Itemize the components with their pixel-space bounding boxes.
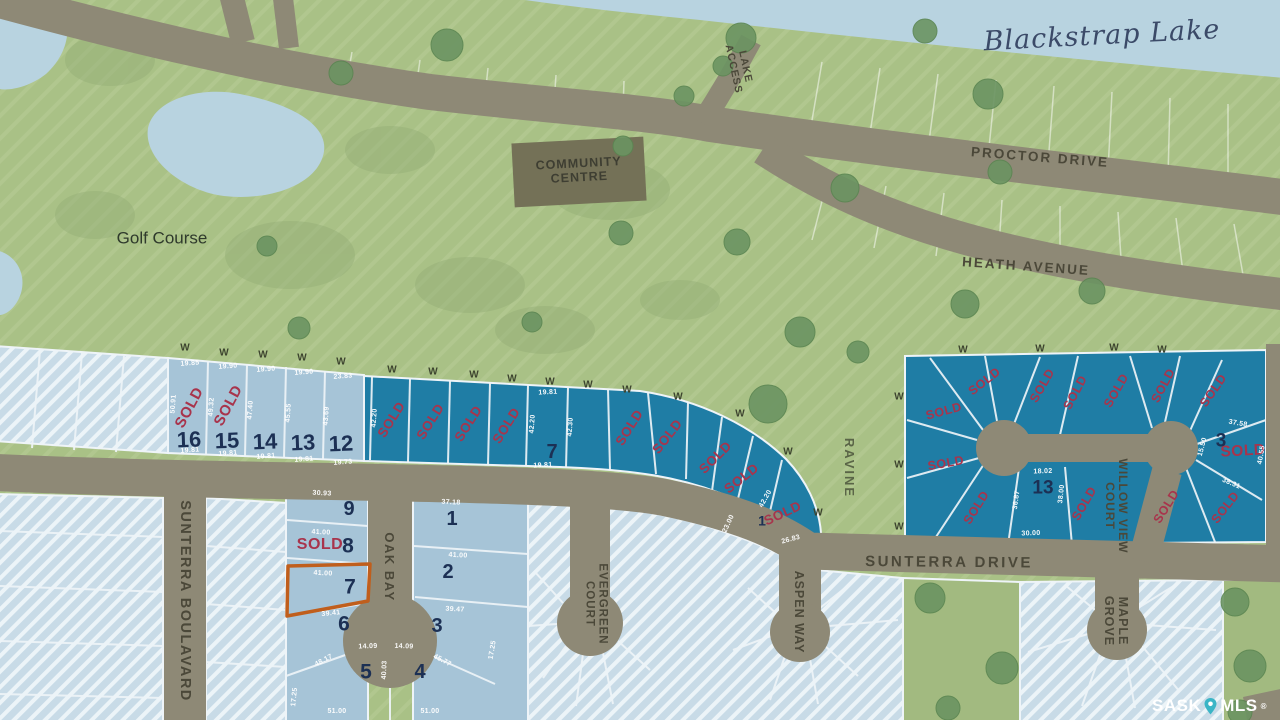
lot-number: 2 — [442, 561, 453, 583]
well-marker: W — [894, 392, 903, 403]
well-marker: W — [507, 374, 516, 385]
lot-dimension: 17.25 — [488, 640, 499, 660]
lot-dimension: 30.00 — [1021, 530, 1040, 538]
well-marker: W — [673, 392, 682, 403]
golf-course-label: Golf Course — [117, 230, 208, 249]
sold-label: SOLD — [375, 399, 409, 440]
lot-dimension: 43.69 — [323, 406, 332, 426]
lot-dimension: 30.93 — [312, 490, 331, 499]
lot-dimension: 45.77 — [432, 653, 452, 669]
lot-number: 1 — [446, 508, 457, 530]
lot-dimension: 19.73 — [333, 459, 353, 468]
lot-dimension: 45.55 — [285, 403, 294, 423]
lot-dimension: 50.91 — [170, 394, 179, 414]
lot-dimension: 19.81 — [256, 453, 276, 462]
sold-label: SOLD — [1209, 489, 1242, 526]
street-sunterra-drive: SUNTERRA DRIVE — [865, 554, 1033, 572]
well-marker: W — [1109, 343, 1118, 354]
sold-label: SOLD — [1061, 374, 1090, 413]
willow-line1: WILLOW VIEW — [1116, 459, 1129, 554]
sold-label: SOLD — [490, 405, 524, 446]
lot-dimension: 42.30 — [567, 417, 576, 437]
lot-number: 7 — [546, 441, 557, 463]
maple-line2: GROVE — [1101, 596, 1115, 646]
sold-label: SOLD — [1070, 485, 1100, 524]
well-marker: W — [1157, 345, 1166, 356]
sold-label: SOLD — [452, 403, 486, 444]
sold-label: SOLD — [1028, 367, 1058, 406]
street-proctor-drive: PROCTOR DRIVE — [970, 145, 1109, 171]
lot-dimension: 15.50 — [1197, 437, 1209, 457]
well-marker: W — [735, 409, 744, 420]
lot-dimension: 14.09 — [358, 643, 377, 651]
lot-number: 9 — [343, 498, 354, 520]
lot-dimension: 23.83 — [333, 373, 353, 382]
lot-dimension: 42.20 — [758, 489, 774, 509]
sold-label: SOLD — [613, 407, 647, 448]
sold-label: SOLD — [961, 489, 992, 527]
well-marker: W — [180, 343, 189, 354]
street-oak-bay: OAK BAY — [382, 532, 396, 601]
sold-label: SOLD — [722, 461, 762, 497]
well-marker: W — [813, 508, 822, 519]
lot-number: 7 — [344, 575, 356, 598]
lot-dimension: 14.09 — [394, 643, 413, 651]
lot-number: 13 — [1032, 479, 1053, 500]
well-marker: W — [469, 370, 478, 381]
sold-label: SOLD — [211, 383, 246, 429]
street-aspen-way: ASPEN WAY — [791, 571, 805, 654]
lot-dimension: 19.81 — [180, 447, 200, 456]
lot-dimension: 19.81 — [294, 456, 314, 465]
lot-dimension: 19.90 — [256, 366, 276, 375]
sold-label: SOLD — [966, 365, 1003, 398]
well-marker: W — [387, 365, 396, 376]
well-marker: W — [545, 377, 554, 388]
lot-dimension: 47.40 — [247, 400, 256, 420]
lot-dimension: 19.81 — [533, 462, 552, 471]
lot-dimension: 40.03 — [381, 660, 389, 679]
lot-dimension: 23.00 — [721, 514, 736, 534]
lot-dimension: 48.17 — [314, 653, 334, 669]
well-marker: W — [894, 522, 903, 533]
willow-line2: COURT — [1103, 459, 1116, 554]
lot-dimension: 37.18 — [441, 499, 460, 508]
lot-dimension: 18.02 — [1033, 468, 1052, 476]
well-marker: W — [622, 385, 631, 396]
lot-number: 13 — [290, 430, 315, 455]
lot-dimension: 19.81 — [538, 389, 557, 398]
lot-number: 4 — [414, 661, 425, 683]
lot-dimension: 19.85 — [180, 360, 200, 369]
watermark-sask: SASK — [1152, 696, 1201, 716]
lot-dimension: 19.90 — [294, 369, 314, 378]
sold-label: SOLD — [762, 499, 804, 529]
lot-dimension: 42.20 — [371, 408, 380, 428]
ravine-label: RAVINE — [842, 438, 856, 498]
evergreen-line1: EVERGREEN — [596, 563, 609, 644]
maple-line1: MAPLE — [1115, 596, 1129, 646]
well-marker: W — [894, 460, 903, 471]
street-willow-view-court: WILLOW VIEW COURT — [1103, 459, 1129, 554]
sold-label: SOLD — [924, 401, 963, 424]
lot-number: 1 — [758, 513, 766, 528]
well-marker: W — [297, 353, 306, 364]
community-centre-label: COMMUNITY CENTRE — [535, 155, 622, 187]
well-marker: W — [258, 350, 267, 361]
well-marker: W — [336, 357, 345, 368]
evergreen-line2: COURT — [583, 563, 596, 644]
well-marker: W — [1035, 344, 1044, 355]
well-marker: W — [958, 345, 967, 356]
lot-dimension: 41.00 — [311, 529, 330, 538]
sold-label: SOLD — [172, 385, 207, 431]
lot-dimension: 37.58 — [1228, 419, 1248, 430]
lot-dimension: 40.55 — [1257, 445, 1268, 465]
lot-dimension: 36.87 — [1012, 490, 1022, 510]
sold-label: SOLD — [1102, 372, 1132, 411]
sold-label: SOLD — [297, 536, 343, 554]
lot-dimension: 19.81 — [218, 450, 238, 459]
well-marker: W — [583, 380, 592, 391]
lot-number: 3 — [431, 615, 442, 637]
sold-label: SOLD — [650, 417, 686, 457]
street-maple-grove: MAPLE GROVE — [1101, 596, 1129, 646]
sask-mls-watermark: SASK MLS ® — [1152, 696, 1267, 716]
lot-dimension: 41.00 — [448, 552, 467, 561]
sold-label: SOLD — [1149, 367, 1178, 406]
lot-dimension: 39.47 — [445, 606, 464, 615]
sold-label: SOLD — [414, 401, 448, 442]
lot-number: 5 — [360, 660, 372, 683]
street-heath-avenue: HEATH AVENUE — [962, 255, 1091, 279]
sold-label: SOLD — [927, 454, 966, 474]
lot-number: 8 — [342, 534, 354, 557]
lot-dimension: 26.83 — [781, 534, 801, 546]
watermark-reg: ® — [1261, 702, 1267, 711]
lot-dimension: 19.90 — [218, 363, 238, 372]
lot-dimension: 42.20 — [529, 414, 538, 434]
map-labels: Blackstrap Lake Golf Course COMMUNITY CE… — [0, 0, 1280, 720]
lot-dimension: 41.00 — [313, 570, 332, 579]
lake-access-label: LAKE ACCESS — [723, 41, 756, 94]
well-marker: W — [219, 348, 228, 359]
sold-label: SOLD — [1198, 372, 1230, 410]
well-marker: W — [783, 447, 792, 458]
lot-number: 14 — [252, 429, 277, 454]
lake-name-label: Blackstrap Lake — [983, 15, 1221, 57]
plot-map: Blackstrap Lake Golf Course COMMUNITY CE… — [0, 0, 1280, 720]
well-marker: W — [428, 367, 437, 378]
mls-pin-icon — [1204, 698, 1217, 715]
lot-dimension: 17.25 — [290, 687, 300, 707]
street-sunterra-boulavard: SUNTERRA BOULAVARD — [176, 500, 192, 702]
sold-label: SOLD — [697, 439, 735, 477]
lot-dimension: 49.32 — [208, 397, 217, 417]
lot-dimension: 51.00 — [420, 708, 439, 716]
lot-number: 3 — [1216, 432, 1227, 453]
lot-dimension: 51.00 — [327, 708, 346, 716]
lot-number: 12 — [328, 431, 353, 456]
sold-label: SOLD — [1151, 488, 1182, 526]
lot-dimension: 38.00 — [1057, 484, 1067, 504]
street-evergreen-court: EVERGREEN COURT — [583, 563, 608, 644]
watermark-mls: MLS — [1220, 696, 1257, 716]
